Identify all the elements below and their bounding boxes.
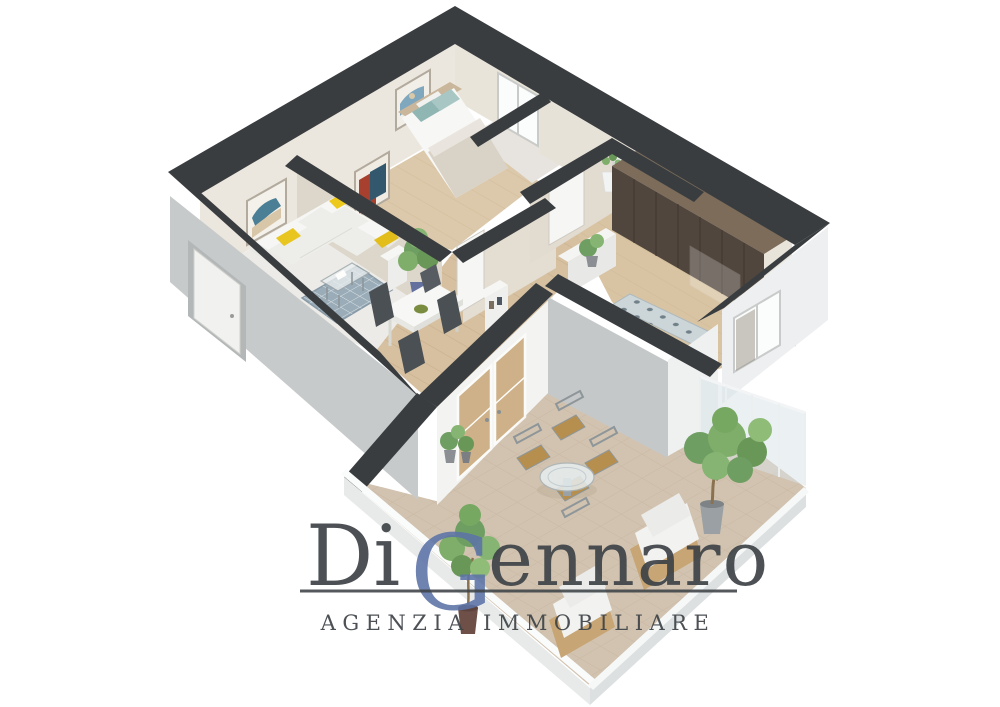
french-door-handle-right bbox=[497, 410, 501, 414]
floorplan-render: Di G ennaro AGENZIA IMMOBILIARE bbox=[0, 0, 1000, 707]
floorplan-screenshot: Di G ennaro AGENZIA IMMOBILIARE bbox=[0, 0, 1000, 707]
entry-door-handle bbox=[230, 314, 234, 318]
french-door-handle-left bbox=[485, 418, 489, 422]
watermark-subtitle: AGENZIA IMMOBILIARE bbox=[320, 611, 716, 635]
watermark: Di G ennaro AGENZIA IMMOBILIARE bbox=[300, 507, 770, 635]
half-wall-plant-pot bbox=[586, 256, 598, 267]
green-bowl bbox=[414, 305, 428, 314]
